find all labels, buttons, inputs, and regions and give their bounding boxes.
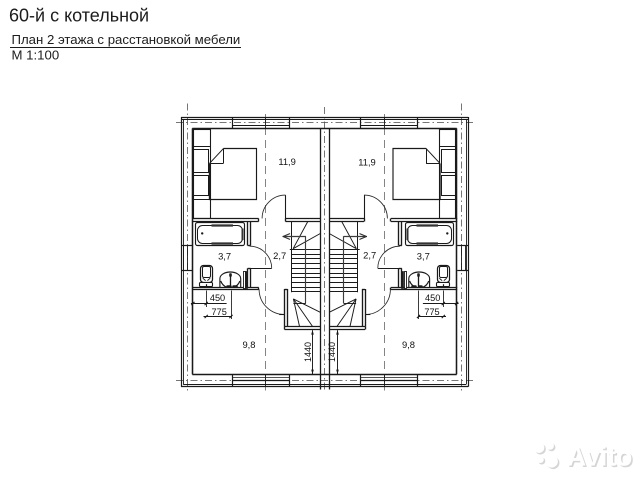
svg-text:9,8: 9,8 <box>242 339 255 350</box>
svg-text:450: 450 <box>210 293 225 303</box>
svg-text:План 2 этажа с расстановкой ме: План 2 этажа с расстановкой мебели <box>12 32 241 47</box>
svg-text:775: 775 <box>424 307 439 317</box>
svg-text:775: 775 <box>212 307 227 317</box>
svg-text:11,9: 11,9 <box>358 157 376 168</box>
svg-text:М 1:100: М 1:100 <box>12 48 60 63</box>
svg-text:9,8: 9,8 <box>402 339 415 350</box>
svg-text:450: 450 <box>425 293 440 303</box>
svg-text:1440: 1440 <box>327 342 337 362</box>
svg-text:11,9: 11,9 <box>278 156 296 167</box>
svg-text:3,7: 3,7 <box>218 250 231 261</box>
svg-text:Avito: Avito <box>567 442 632 472</box>
svg-text:60-й с котельной: 60-й с котельной <box>9 6 149 26</box>
svg-text:1440: 1440 <box>303 342 313 362</box>
svg-text:3,7: 3,7 <box>417 250 430 261</box>
svg-text:2,7: 2,7 <box>273 250 286 261</box>
svg-text:2,7: 2,7 <box>363 250 376 261</box>
